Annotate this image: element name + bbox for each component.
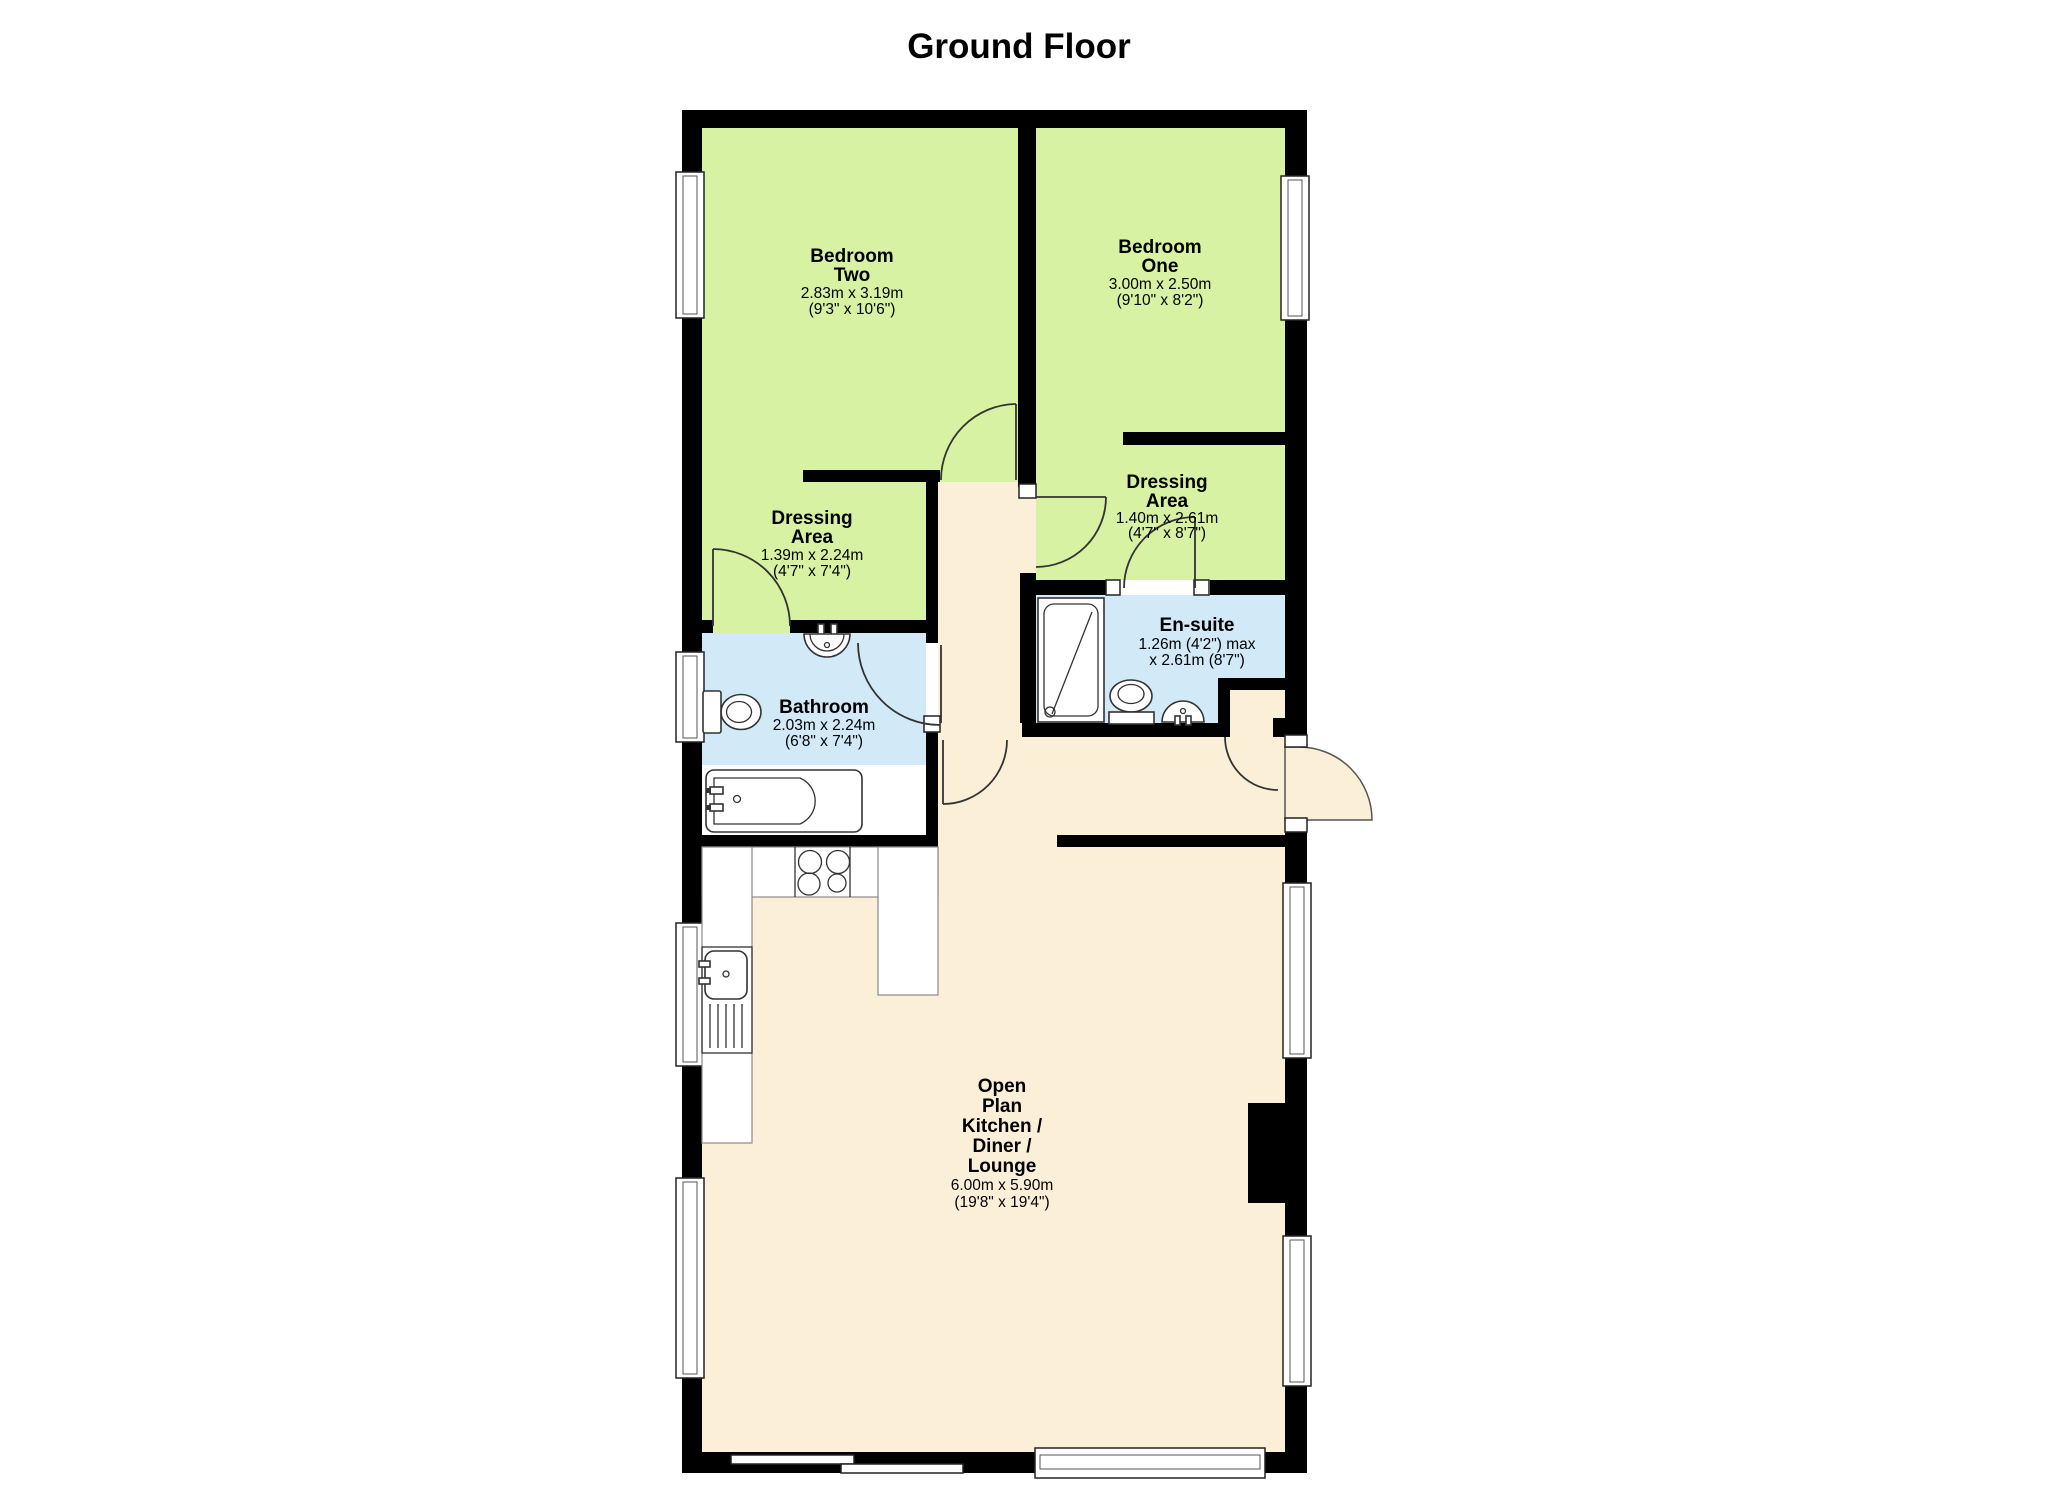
room-dimensions: x 2.61m (8'7") bbox=[1149, 652, 1244, 669]
room-name: Plan bbox=[982, 1096, 1022, 1117]
room-dimensions: (4'7" x 8'7") bbox=[1128, 525, 1206, 542]
wall-dressing-right-top bbox=[1123, 432, 1285, 445]
room-name: Lounge bbox=[968, 1156, 1037, 1177]
tap-knob bbox=[706, 805, 711, 810]
window-open-plan-lower bbox=[1283, 1236, 1311, 1386]
wall-hallway-left-upper bbox=[926, 482, 938, 643]
wall-top bbox=[682, 110, 1307, 128]
wall-dressing-left-bottom bbox=[790, 620, 938, 633]
room-dimensions: 1.26m (4'2") max bbox=[1139, 636, 1256, 653]
threshold-ensuite-left bbox=[1106, 580, 1120, 595]
window-bedroom-one bbox=[1281, 176, 1309, 320]
open-plan-bridge-floor bbox=[938, 835, 1057, 847]
tap-knob bbox=[706, 788, 711, 793]
window-bedroom-two bbox=[676, 172, 704, 318]
toilet-ensuite bbox=[1109, 680, 1154, 724]
room-dimensions: (9'3" x 10'6") bbox=[809, 301, 896, 318]
room-name: Area bbox=[1146, 491, 1189, 512]
room-name: Diner / bbox=[972, 1136, 1032, 1157]
wall-dressing-left-stub bbox=[702, 620, 713, 633]
room-name: Kitchen / bbox=[962, 1116, 1043, 1137]
wall-bedroom-two-bottom bbox=[803, 470, 940, 482]
wall-ensuite-top-left bbox=[1020, 580, 1110, 595]
room-name: Dressing bbox=[771, 508, 852, 529]
room-name: Dressing bbox=[1126, 472, 1207, 493]
window-bottom bbox=[1035, 1448, 1265, 1478]
room-name: Two bbox=[834, 265, 871, 286]
window-open-plan-upper bbox=[1283, 883, 1311, 1058]
room-name: Bathroom bbox=[779, 697, 869, 718]
wall-entrance-recess-top bbox=[1218, 678, 1285, 690]
room-dimensions: 2.83m x 3.19m bbox=[801, 285, 904, 302]
wall-bedroom-divider bbox=[1018, 128, 1036, 487]
room-name: En-suite bbox=[1160, 615, 1235, 636]
page-title: Ground Floor bbox=[907, 27, 1131, 66]
room-name: One bbox=[1142, 256, 1179, 277]
window-kitchen bbox=[676, 923, 704, 1066]
threshold-bedroom-two bbox=[1019, 484, 1036, 498]
window-lounge-left bbox=[676, 1178, 704, 1378]
front-door-threshold-bottom bbox=[1285, 818, 1307, 832]
wall-ensuite-left bbox=[1020, 573, 1036, 723]
wall-corridor-bottom bbox=[1057, 835, 1285, 847]
label-bathroom: Bathroom 2.03m x 2.24m (6'8" x 7'4") bbox=[773, 697, 876, 750]
hallway-door-gap-floor bbox=[1018, 497, 1036, 573]
room-dimensions: (6'8" x 7'4") bbox=[785, 733, 863, 750]
wall-ensuite-top-right bbox=[1210, 580, 1285, 595]
toilet-bathroom bbox=[703, 691, 761, 733]
front-door-threshold-top bbox=[1285, 735, 1307, 747]
wall-entrance-recess-side bbox=[1218, 690, 1230, 737]
threshold-ensuite-right bbox=[1194, 580, 1209, 595]
room-dimensions: (9'10" x 8'2") bbox=[1117, 292, 1204, 309]
room-dimensions: (4'7" x 7'4") bbox=[773, 563, 851, 580]
floor-plan-page: Ground Floor Bedroom Two 2.83m x 3.19m (… bbox=[0, 0, 2048, 1489]
room-name: Bedroom bbox=[1118, 237, 1201, 258]
room-name: Area bbox=[791, 527, 834, 548]
room-dimensions: 3.00m x 2.50m bbox=[1109, 276, 1212, 293]
wall-hallway-left-lower bbox=[926, 731, 938, 845]
floor-plan: Ground Floor Bedroom Two 2.83m x 3.19m (… bbox=[0, 0, 2048, 1489]
room-dimensions: 6.00m x 5.90m bbox=[951, 1177, 1054, 1194]
front-door-swing bbox=[1285, 747, 1372, 820]
room-name: Open bbox=[978, 1076, 1027, 1097]
room-dimensions: 2.03m x 2.24m bbox=[773, 717, 876, 734]
chimney-breast bbox=[1248, 1103, 1285, 1203]
wall-kitchen-bathroom bbox=[682, 835, 938, 847]
window-bathroom bbox=[676, 652, 704, 742]
room-name: Bedroom bbox=[810, 246, 893, 267]
room-dimensions: 1.39m x 2.24m bbox=[761, 547, 864, 564]
shower bbox=[1038, 598, 1104, 722]
bathtub bbox=[706, 770, 862, 832]
room-dimensions: (19'8" x 19'4") bbox=[954, 1194, 1049, 1211]
wall-entrance-stub bbox=[1273, 718, 1285, 737]
